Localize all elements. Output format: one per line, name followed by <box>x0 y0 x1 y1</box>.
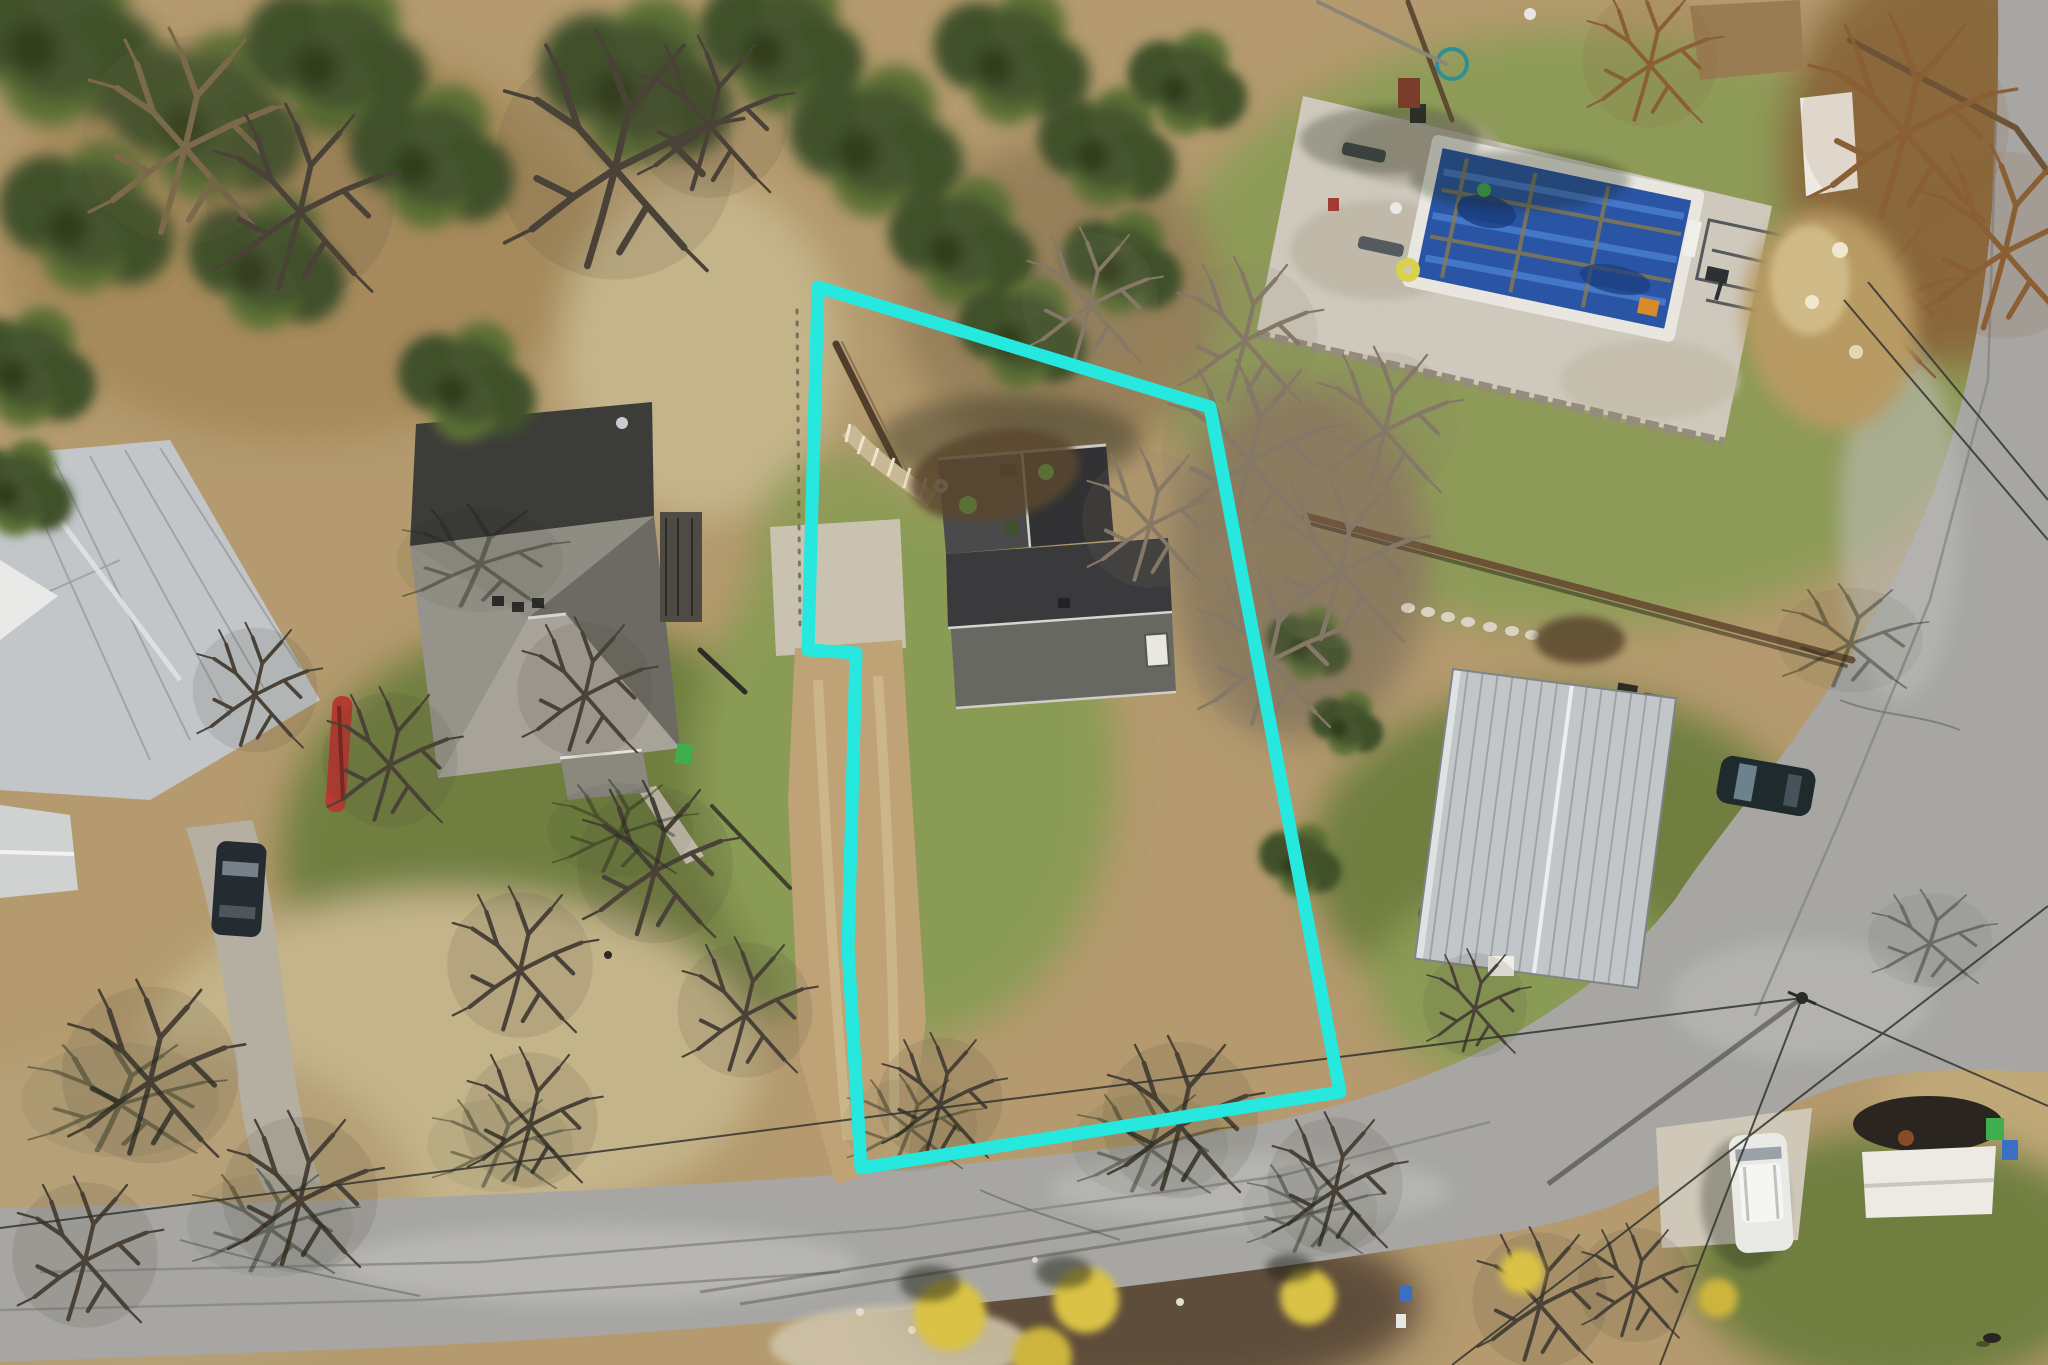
blue-mailbox <box>1400 1286 1412 1302</box>
shrub <box>1004 520 1020 536</box>
pool-ladder <box>1524 8 1536 20</box>
aerial-photo <box>0 0 2048 1365</box>
dog-shadow <box>1976 1341 1990 1347</box>
yard-post <box>604 951 612 959</box>
subject-parking-pad <box>770 519 906 656</box>
screenshot-root <box>0 0 2048 1365</box>
white-dormer <box>1145 633 1169 666</box>
white-mailbox <box>1396 1314 1406 1328</box>
mulch-bed <box>1535 616 1625 664</box>
shed-ridge <box>0 852 74 854</box>
blue-bin <box>2002 1140 2018 1160</box>
green-bin <box>1986 1118 2004 1140</box>
parked-car-left <box>211 840 267 937</box>
shrub <box>959 496 977 514</box>
right-neighbor-house <box>1415 669 1676 988</box>
wheel <box>1898 1130 1914 1146</box>
vent <box>1058 598 1070 608</box>
pool-equipment-box <box>1398 78 1420 108</box>
green-trash-bin <box>674 743 693 765</box>
satellite-dish <box>616 417 628 429</box>
equipment-pile <box>1853 1096 2003 1152</box>
shrub <box>1038 464 1054 480</box>
